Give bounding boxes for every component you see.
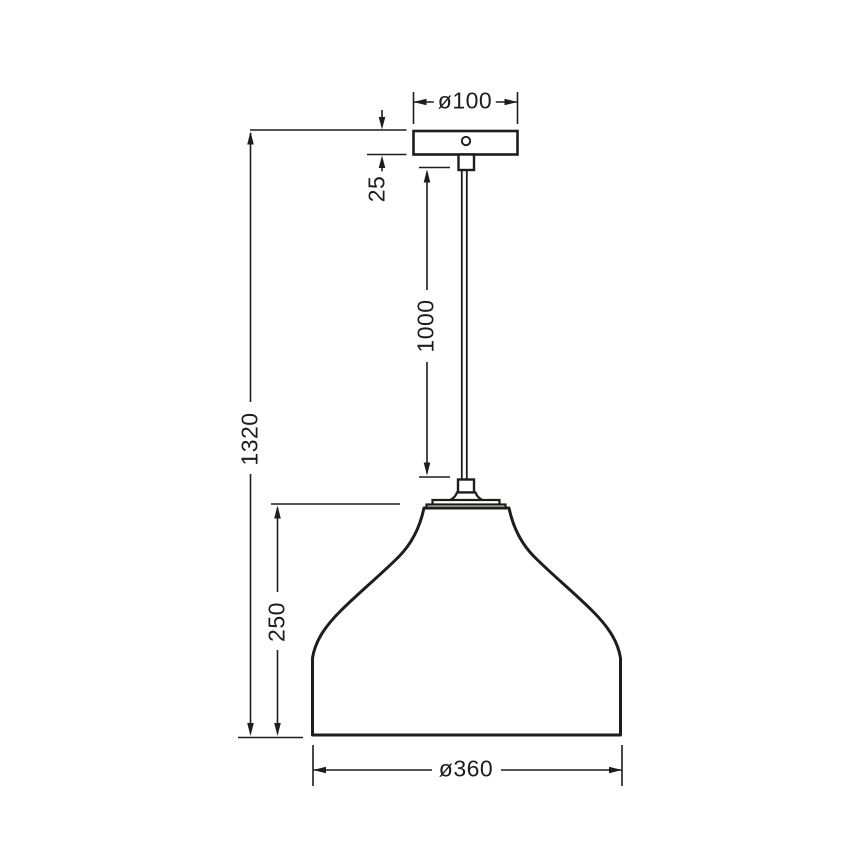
arrow-right-icon bbox=[505, 99, 518, 106]
dimension-label-cable-length: 1000 bbox=[414, 295, 439, 356]
arrow-up-icon bbox=[274, 506, 281, 519]
canopy-cord-connector bbox=[459, 155, 475, 171]
dim-canopy-height bbox=[250, 110, 407, 176]
lamp-outline bbox=[313, 131, 621, 735]
dimension-label-canopy-diameter: ø100 bbox=[434, 89, 496, 114]
arrow-down-icon bbox=[274, 723, 281, 736]
arrow-up-icon bbox=[424, 170, 431, 183]
arrow-down-icon bbox=[424, 463, 431, 476]
arrow-up-icon bbox=[379, 156, 386, 169]
arrow-up-icon bbox=[247, 132, 254, 145]
arrow-down-icon bbox=[379, 117, 386, 130]
arrow-left-icon bbox=[313, 767, 326, 774]
lamp-shade bbox=[313, 508, 621, 735]
arrow-left-icon bbox=[414, 99, 427, 106]
arrow-down-icon bbox=[247, 723, 254, 736]
dimension-label-shade-diameter: ø360 bbox=[435, 757, 497, 782]
dimension-label-overall-height: 1320 bbox=[238, 408, 263, 469]
dimension-label-canopy-height: 25 bbox=[365, 172, 390, 207]
arrow-right-icon bbox=[609, 767, 622, 774]
cord-grip bbox=[427, 480, 506, 509]
canopy-screw-hole bbox=[462, 137, 470, 145]
dimension-label-shade-height: 250 bbox=[265, 598, 290, 646]
suspension-cable bbox=[462, 170, 467, 480]
dimension-drawing-page: ø100 25 1000 1320 250 ø360 bbox=[0, 0, 868, 868]
pendant-lamp-drawing bbox=[0, 0, 868, 868]
